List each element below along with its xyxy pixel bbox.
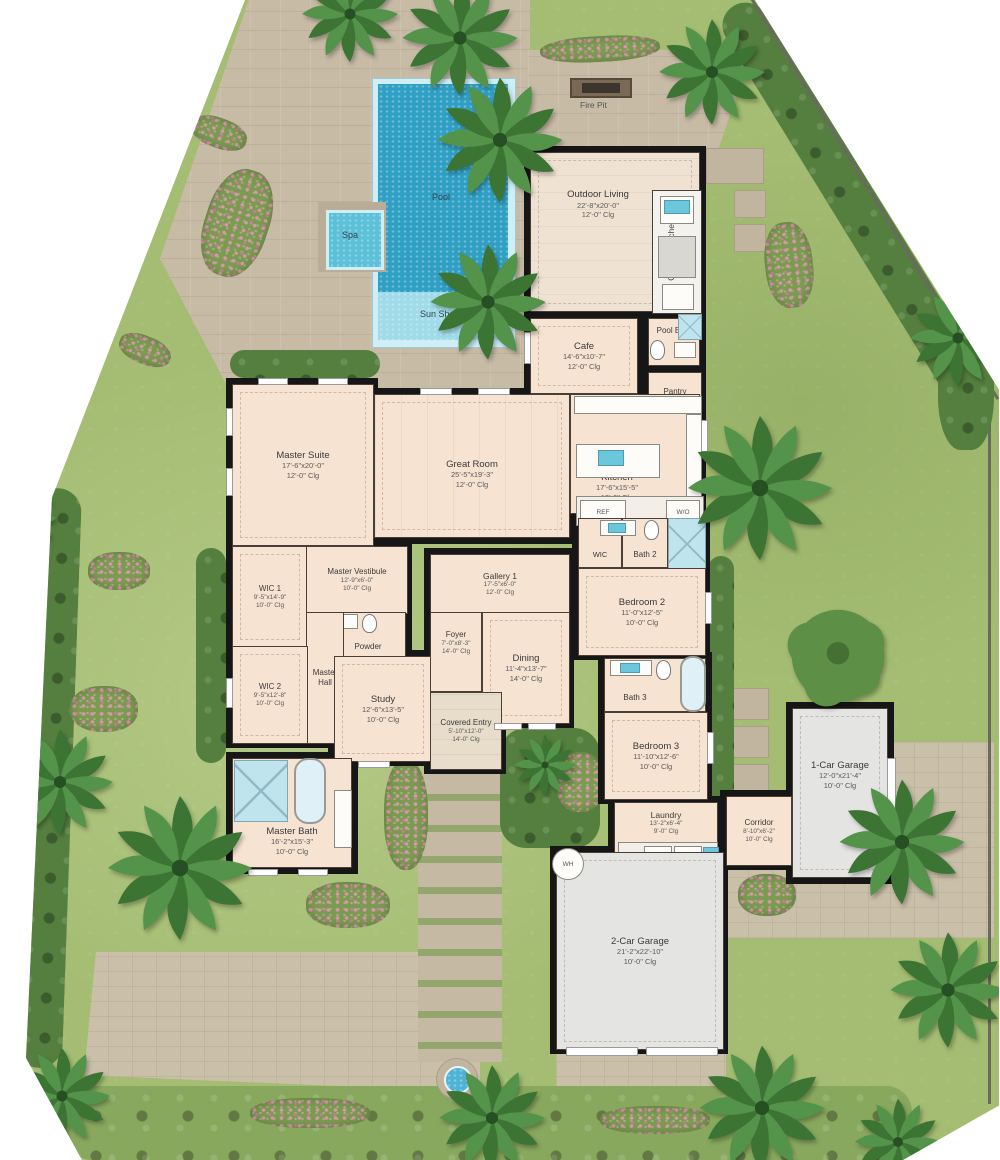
window — [494, 723, 522, 730]
paver-pad — [733, 726, 769, 758]
window — [528, 723, 556, 730]
flower-bed — [306, 882, 390, 928]
pool-bath-vanity — [674, 342, 696, 358]
fire-pit — [570, 78, 632, 98]
palm-icon — [853, 1097, 943, 1160]
palm-icon — [428, 242, 548, 362]
flower-bed — [761, 220, 818, 311]
hedge-above-master — [230, 350, 380, 378]
window — [420, 388, 452, 395]
spa-water — [326, 210, 384, 270]
palm-icon — [435, 75, 565, 205]
room-foyer: Foyer 7'-0"x8'-3" 14'-0" Clg — [430, 612, 482, 692]
palm-icon — [437, 1063, 547, 1160]
room-covered-entry: Covered Entry 5'-10"x12'-0" 14'-0" Clg — [430, 692, 502, 770]
flower-bed — [115, 327, 176, 373]
outdoor-kitchen-cabinet — [662, 284, 694, 310]
window — [358, 761, 390, 768]
paver-pad — [706, 148, 764, 184]
bath3-tub — [680, 656, 706, 712]
palm-icon — [657, 17, 767, 127]
master-tub — [294, 758, 326, 824]
water-heater: WH — [552, 848, 584, 880]
flower-bed — [600, 1106, 710, 1134]
room-wic2: WIC 2 9'-5"x12'-8" 10'-0" Clg — [232, 646, 308, 744]
bath2-toilet — [644, 520, 659, 540]
window — [258, 378, 288, 385]
palm-icon — [0, 478, 58, 558]
window — [478, 388, 510, 395]
entry-walkway — [418, 770, 502, 1062]
palm-icon — [513, 733, 577, 797]
room-2-car-garage: 2-Car Garage 21'-2"x22'-10" 10'-0" Clg — [556, 852, 724, 1050]
bath3-sink — [620, 663, 640, 673]
room-master-suite: Master Suite 17'-6"x20'-0" 12'-0" Clg — [232, 384, 374, 546]
room-wic1: WIC 1 9'-5"x14'-9" 10'-0" Clg — [232, 546, 308, 648]
room-corridor: Corridor 8'-10"x6'-2" 10'-0" Clg — [726, 796, 792, 866]
powder-toilet — [362, 614, 377, 633]
window — [707, 732, 714, 764]
site-lot: Pool Spa Sun Shelf Fire Pit Outdoor Livi… — [0, 0, 1000, 1160]
palm-icon — [888, 930, 1000, 1050]
label-spa: Spa — [342, 230, 358, 240]
flower-bed — [250, 1098, 370, 1128]
window — [318, 378, 348, 385]
palm-icon — [685, 413, 835, 563]
room-great-room: Great Room 25'-5"x19'-3" 12'-0" Clg — [374, 394, 570, 538]
paver-pad — [733, 688, 769, 720]
room-bedroom3: Bedroom 3 11'-10"x12'-6" 10'-0" Clg — [604, 712, 708, 800]
shrubs-left-of-house — [196, 548, 226, 763]
room-master-vestibule: Master Vestibule 12'-9"x6'-0" 10'-0" Clg — [306, 546, 408, 614]
window — [226, 678, 233, 708]
flower-bed — [70, 686, 138, 732]
palm-icon — [697, 1043, 827, 1160]
window — [226, 408, 233, 436]
bath2-sink — [608, 523, 626, 533]
kitchen-counter-top — [574, 396, 702, 414]
palm-icon — [12, 1046, 112, 1146]
palm-icon — [908, 288, 1000, 388]
room-study: Study 12'-6"x13'-5" 10'-0" Clg — [334, 656, 432, 762]
palm-icon — [5, 727, 115, 837]
tree-icon — [768, 586, 908, 726]
paver-pad — [734, 190, 766, 218]
palm-icon — [105, 793, 255, 943]
flower-bed — [384, 760, 428, 870]
window — [226, 468, 233, 496]
room-gallery1: Gallery 1 17'-5"x6'-0" 12'-0" Clg — [430, 554, 570, 614]
room-bedroom2: Bedroom 2 11'-0"x12'-5" 10'-0" Clg — [578, 568, 706, 656]
outdoor-kitchen-grill — [658, 236, 696, 278]
master-vanity — [334, 790, 352, 848]
garage2-door — [566, 1047, 638, 1056]
window — [705, 592, 712, 624]
pool-bath-toilet — [650, 340, 665, 360]
label-fire-pit: Fire Pit — [580, 100, 607, 110]
pool-bath-shower — [678, 314, 702, 340]
flower-bed — [88, 552, 150, 590]
bath3-toilet — [656, 660, 671, 680]
kitchen-island-sink — [598, 450, 624, 466]
palm-icon — [300, 0, 400, 64]
paver-pad — [734, 224, 766, 252]
outdoor-kitchen-sink — [664, 200, 690, 214]
floor-plan-canvas: Pool Spa Sun Shelf Fire Pit Outdoor Livi… — [0, 0, 1000, 1160]
palm-icon — [837, 777, 967, 907]
window — [298, 869, 328, 876]
